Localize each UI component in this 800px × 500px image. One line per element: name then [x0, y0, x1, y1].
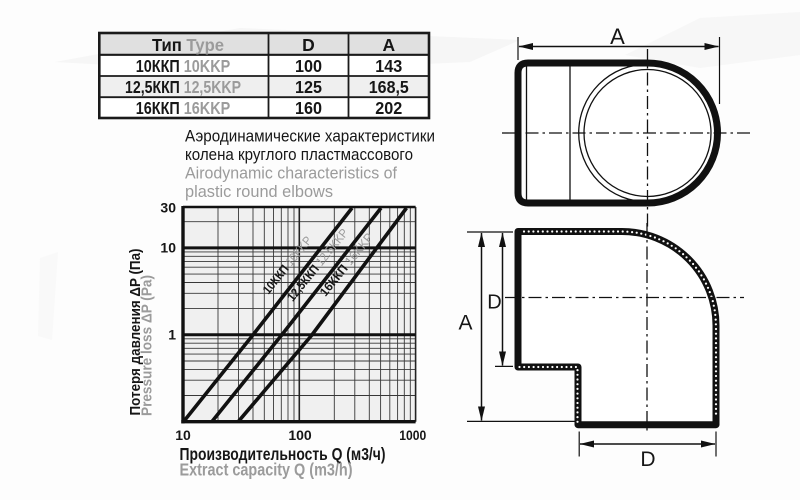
svg-text:A: A: [610, 24, 625, 49]
svg-text:202: 202: [375, 98, 402, 118]
svg-text:Pressure loss ΔP (Pa): Pressure loss ΔP (Pa): [140, 275, 156, 416]
svg-text:160: 160: [295, 98, 322, 118]
svg-text:100: 100: [295, 56, 322, 76]
svg-text:A: A: [458, 312, 472, 335]
svg-text:16ККП 16KKP: 16ККП 16KKP: [136, 98, 231, 118]
svg-text:1: 1: [168, 327, 176, 343]
svg-text:Аэродинамические характеристик: Аэродинамические характеристики: [185, 128, 435, 146]
svg-text:125: 125: [295, 77, 322, 97]
svg-text:D: D: [487, 292, 501, 314]
svg-text:колена круглого пластмассового: колена круглого пластмассового: [185, 146, 413, 164]
svg-text:30: 30: [160, 200, 176, 216]
svg-text:10ККП 10KKP: 10ККП 10KKP: [136, 56, 231, 76]
svg-text:10: 10: [175, 427, 191, 443]
svg-text:100: 100: [288, 427, 312, 443]
svg-text:Тип Type: Тип Type: [152, 35, 224, 55]
svg-text:Extract capacity Q (m3/h): Extract capacity Q (m3/h): [180, 460, 353, 480]
svg-text:D: D: [302, 35, 315, 55]
svg-text:168,5: 168,5: [369, 77, 409, 97]
svg-text:1000: 1000: [399, 427, 426, 443]
svg-text:12,5ККП 12,5KKP: 12,5ККП 12,5KKP: [125, 77, 241, 97]
svg-text:D: D: [640, 448, 655, 471]
svg-text:plastic round elbows: plastic round elbows: [185, 183, 333, 201]
svg-text:A: A: [382, 35, 395, 55]
svg-text:143: 143: [375, 56, 402, 76]
svg-text:Airodynamic characteristics of: Airodynamic characteristics of: [185, 165, 397, 183]
svg-text:10: 10: [160, 240, 176, 256]
